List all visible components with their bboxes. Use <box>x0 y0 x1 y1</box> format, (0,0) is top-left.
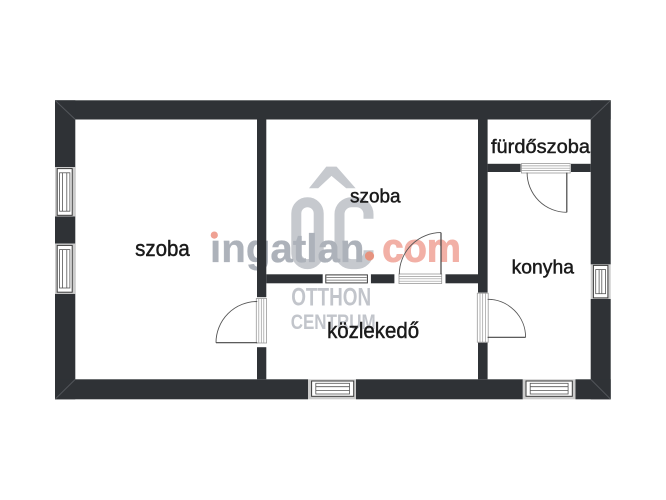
svg-text:com: com <box>382 227 461 271</box>
svg-text:ıngatlan: ıngatlan <box>210 227 365 271</box>
svg-text:szoba: szoba <box>135 236 190 261</box>
svg-text:közlekedő: közlekedő <box>327 318 419 343</box>
svg-text:konyha: konyha <box>512 258 575 279</box>
svg-text:OTTHON: OTTHON <box>291 284 371 312</box>
svg-text:fürdőszoba: fürdőszoba <box>491 136 590 158</box>
svg-text:szoba: szoba <box>350 186 401 208</box>
